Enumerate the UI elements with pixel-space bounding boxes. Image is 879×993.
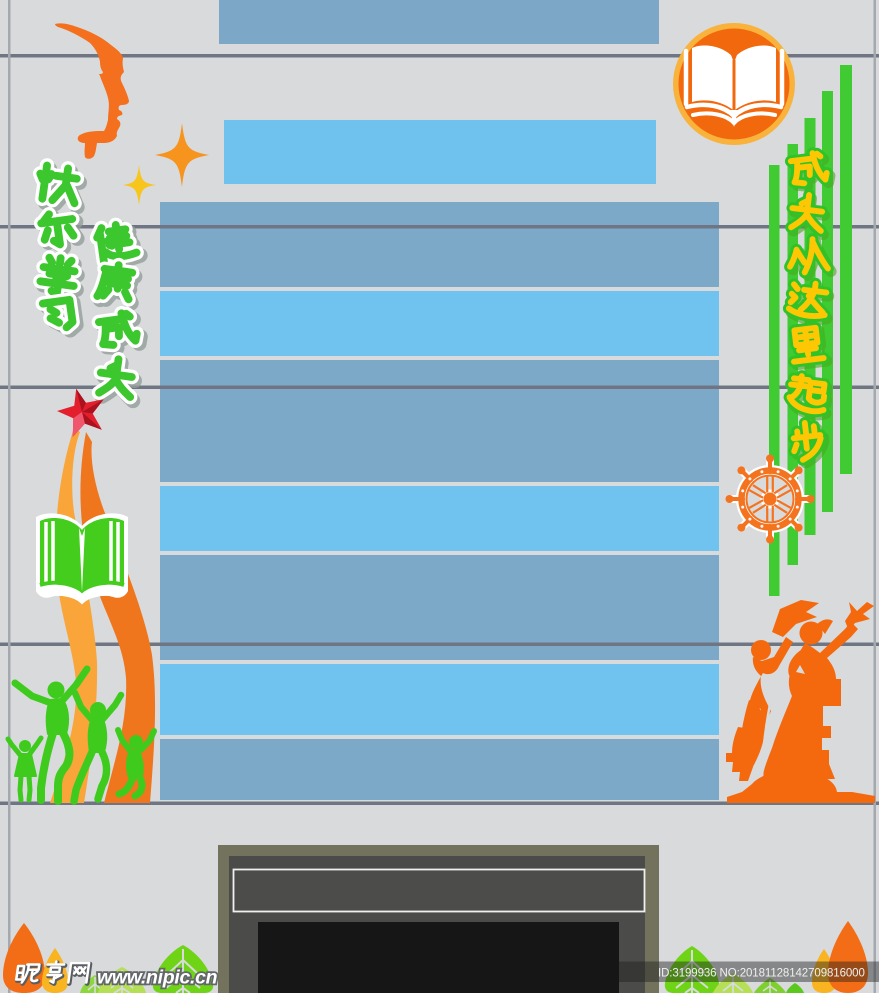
svg-text:ID:3199936 NO:2018112814270981: ID:3199936 NO:20181128142709816000 (658, 968, 865, 980)
svg-text:www.nipic.cn: www.nipic.cn (97, 967, 218, 989)
